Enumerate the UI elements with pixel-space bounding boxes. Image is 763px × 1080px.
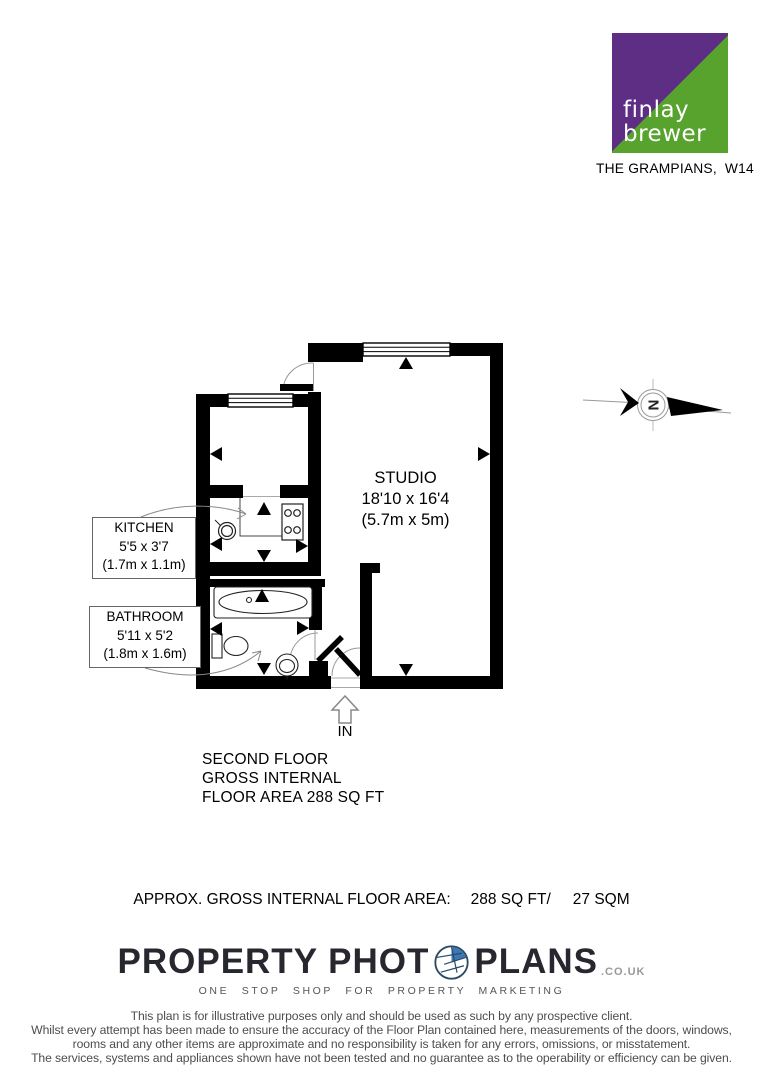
entrance-arrow-icon [332, 696, 358, 723]
studio-dims-imperial: 18'10 x 16'4 [328, 489, 483, 510]
floor-summary-line2: GROSS INTERNAL [202, 769, 384, 788]
studio-label: STUDIO 18'10 x 16'4 (5.7m x 5m) [328, 468, 483, 531]
disclaimer-line2: Whilst every attempt has been made to en… [0, 1024, 763, 1038]
agent-logo: finlay brewer [612, 33, 728, 153]
bathroom-dims-metric: (1.8m x 1.6m) [90, 645, 200, 664]
camera-aperture-icon [433, 944, 470, 981]
area-summary-label: APPROX. GROSS INTERNAL FLOOR AREA: [133, 891, 450, 908]
kitchen-dims-imperial: 5'5 x 3'7 [93, 538, 195, 557]
bathroom-label-box: BATHROOM 5'11 x 5'2 (1.8m x 1.6m) [89, 606, 201, 668]
floor-summary: SECOND FLOOR GROSS INTERNAL FLOOR AREA 2… [202, 750, 384, 807]
kitchen-name: KITCHEN [93, 519, 195, 538]
entrance-label: IN [325, 723, 365, 740]
agent-logo-wordmark: finlay brewer [623, 98, 706, 146]
disclaimer-line1: This plan is for illustrative purposes o… [0, 1010, 763, 1024]
kitchen-label-box: KITCHEN 5'5 x 3'7 (1.7m x 1.1m) [92, 517, 196, 579]
kitchen-dims-metric: (1.7m x 1.1m) [93, 556, 195, 575]
kitchen-fixtures [215, 498, 303, 540]
agent-logo-line2: brewer [623, 122, 706, 146]
provider-logo: PROPERTY PHOT PLANS .CO.UK [0, 939, 763, 985]
area-summary-imperial: 288 SQ FT/ [471, 891, 551, 908]
floorplan-page: N finlay brewer THE GRAMPIANS, W14 STUDI… [0, 0, 763, 1080]
disclaimer-line4: The services, systems and appliances sho… [0, 1052, 763, 1066]
provider-tagline: ONE STOP SHOP FOR PROPERTY MARKETING [0, 985, 763, 997]
provider-name-left: PROPERTY PHOT [118, 942, 430, 982]
compass-north-label: N [645, 400, 662, 411]
agent-logo-line1: finlay [623, 98, 706, 122]
area-summary-metric: 27 SQM [573, 891, 630, 908]
floor-summary-line1: SECOND FLOOR [202, 750, 384, 769]
toilet-icon [212, 634, 222, 658]
bathroom-name: BATHROOM [90, 608, 200, 627]
bathroom-dims-imperial: 5'11 x 5'2 [90, 627, 200, 646]
studio-dims-metric: (5.7m x 5m) [328, 510, 483, 531]
property-address: THE GRAMPIANS, W14 [596, 161, 752, 176]
provider-domain: .CO.UK [601, 966, 646, 978]
studio-name: STUDIO [328, 468, 483, 489]
compass-icon: N [583, 379, 731, 431]
provider-name-right: PLANS [474, 942, 598, 982]
floor-summary-line3: FLOOR AREA 288 SQ FT [202, 788, 384, 807]
disclaimer: This plan is for illustrative purposes o… [0, 1010, 763, 1066]
area-summary: APPROX. GROSS INTERNAL FLOOR AREA:288 SQ… [0, 891, 763, 909]
stove-icon [282, 504, 303, 540]
disclaimer-line3: rooms and any other items are approximat… [0, 1038, 763, 1052]
